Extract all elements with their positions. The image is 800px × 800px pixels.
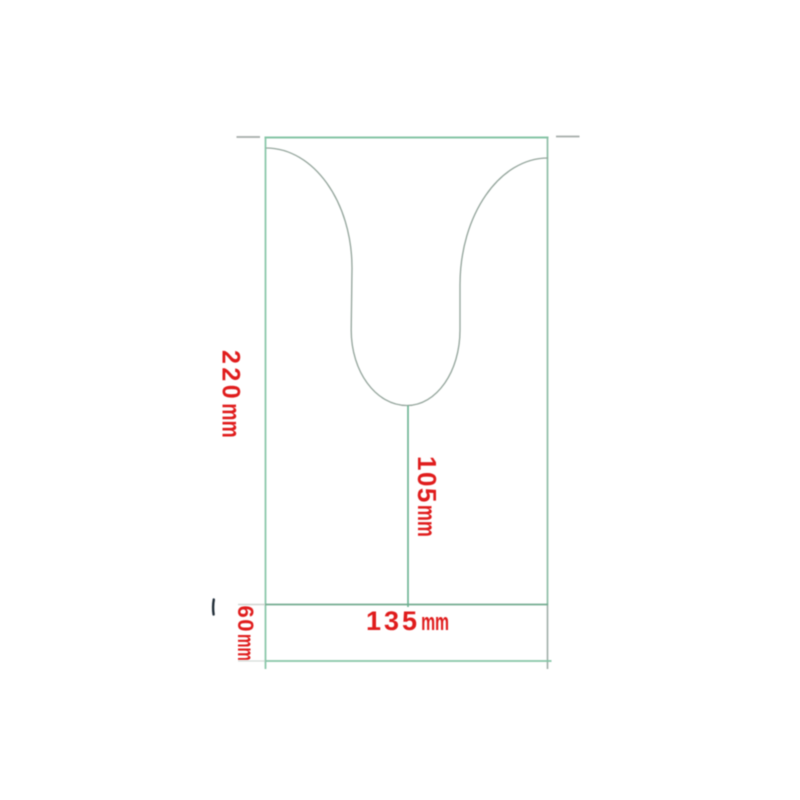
svg-text:60mm: 60mm (233, 606, 259, 661)
svg-text:220mm: 220mm (217, 350, 247, 438)
svg-text:105mm: 105mm (412, 456, 442, 537)
svg-text:135mm: 135mm (366, 606, 449, 636)
